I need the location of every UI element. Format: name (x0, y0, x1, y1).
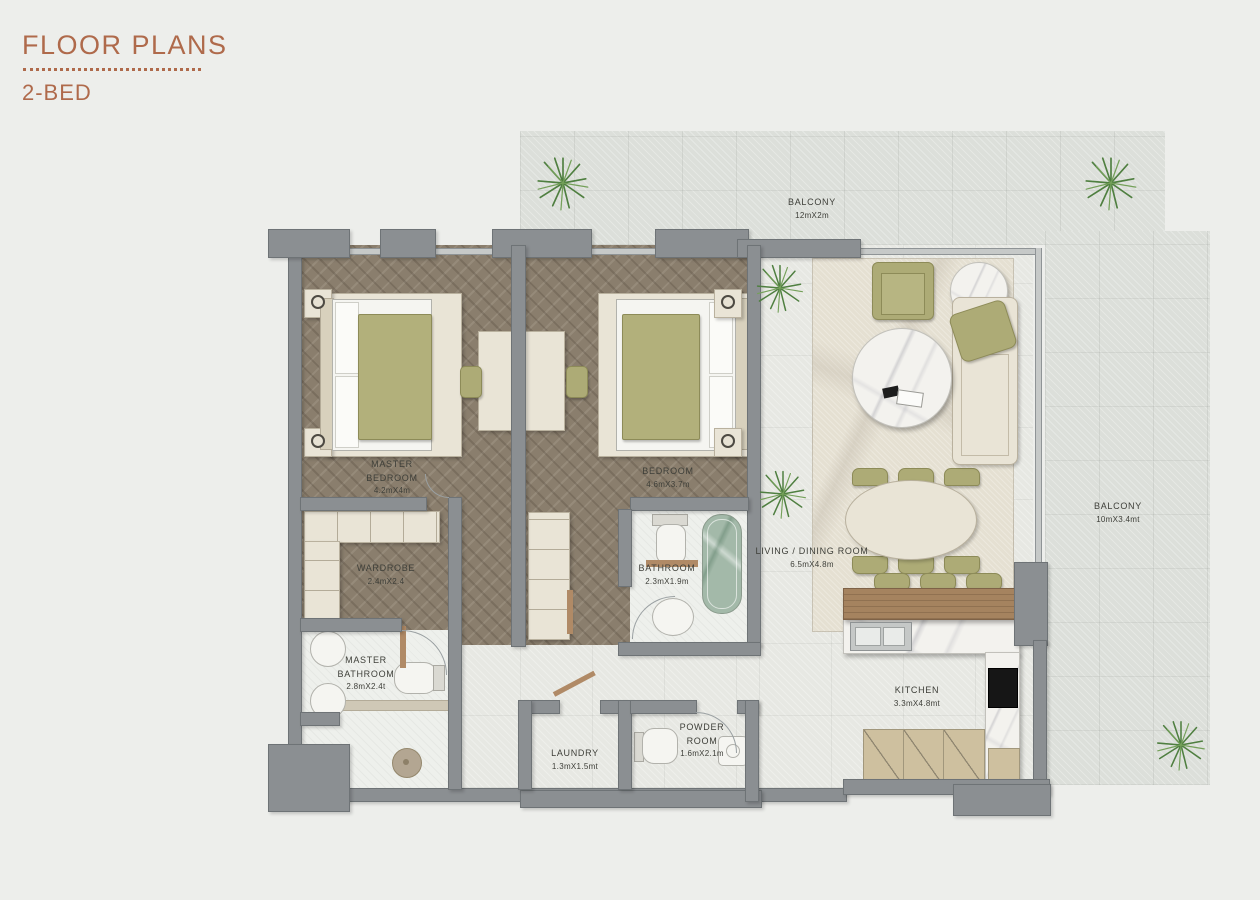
toilet (656, 524, 686, 564)
sofa-seat (961, 354, 1009, 456)
dining-chair (944, 556, 980, 574)
label-bedroom: BEDROOM 4.6mX3.7m (613, 465, 723, 491)
plant-icon (1152, 716, 1210, 779)
dining-chair (944, 468, 980, 486)
kitchen-sink (850, 622, 912, 651)
plant-icon (752, 260, 808, 321)
wall (518, 700, 532, 790)
shower-threshold (340, 700, 450, 711)
lamp-icon (721, 434, 735, 448)
label-kitchen: KITCHEN 3.3mX4.8mt (862, 684, 972, 710)
wall (630, 497, 749, 511)
kitchen-breakfast-bar (843, 588, 1020, 620)
wall-pillar (655, 229, 749, 258)
wardrobe-unit-top (304, 511, 440, 543)
label-living-dining: LIVING / DINING ROOM 6.5mX4.8m (727, 545, 897, 571)
wall-pillar (268, 229, 350, 258)
shower-head-icon (392, 748, 422, 778)
wall-pillar (268, 744, 350, 812)
coffee-table (852, 328, 952, 428)
door-leaf (567, 590, 573, 634)
desk (525, 331, 565, 431)
wall (448, 497, 462, 790)
armchair-cushion (881, 273, 925, 315)
wall (618, 642, 761, 656)
wall (1033, 640, 1047, 794)
desk (478, 331, 513, 431)
bed-duvet (622, 314, 700, 440)
title-divider (23, 68, 201, 71)
plant-icon (1080, 152, 1142, 219)
pillow (335, 376, 359, 448)
wall (630, 700, 697, 714)
label-bathroom: BATHROOM 2.3mX1.9m (622, 562, 712, 588)
lamp-icon (311, 295, 325, 309)
master-bed-duvet (358, 314, 432, 440)
sink-basin (883, 627, 905, 646)
armchair (872, 262, 934, 320)
wall (300, 497, 427, 511)
label-master-bedroom: MASTER BEDROOM 4.2mX4m (347, 458, 437, 497)
label-wardrobe: WARDROBE 2.4mX2.4 (336, 562, 436, 588)
pillow (335, 302, 359, 374)
balcony-top-area (520, 131, 1165, 245)
wall-pillar (380, 229, 436, 258)
desk-chair (460, 366, 482, 398)
wall-bedroom-divider (511, 245, 526, 647)
sink-basin (855, 627, 881, 646)
wall-pillar (492, 229, 592, 258)
plant-icon (755, 466, 811, 527)
label-powder-room: POWDER ROOM 1.6mX2.1m (670, 721, 734, 760)
plan-type-subtitle: 2-BED (22, 80, 228, 106)
lamp-icon (311, 434, 325, 448)
coffee-table-magazine (896, 389, 924, 407)
wall (300, 618, 402, 632)
cooktop (988, 668, 1018, 708)
wall (300, 712, 340, 726)
label-balcony-right: BALCONY 10mX3.4mt (1068, 500, 1168, 526)
label-balcony-top: BALCONY 12mX2m (762, 196, 862, 222)
label-laundry: LAUNDRY 1.3mX1.5mt (530, 747, 620, 773)
page-title-block: FLOOR PLANS 2-BED (22, 30, 228, 106)
desk-chair (566, 366, 588, 398)
lamp-icon (721, 295, 735, 309)
wall (520, 790, 762, 808)
hall-closet (528, 512, 570, 640)
page-title: FLOOR PLANS (22, 30, 228, 61)
wall (1014, 562, 1048, 646)
window-strip (1035, 248, 1042, 566)
wall (745, 700, 759, 802)
floor-plan-page: { "header": { "title": "FLOOR PLANS", "s… (0, 0, 1260, 900)
plant-icon (532, 152, 594, 219)
wall-pillar (953, 784, 1051, 816)
wardrobe-unit-left (304, 541, 340, 621)
label-master-bathroom: MASTER BATHROOM 2.8mX2.4t (323, 654, 409, 693)
